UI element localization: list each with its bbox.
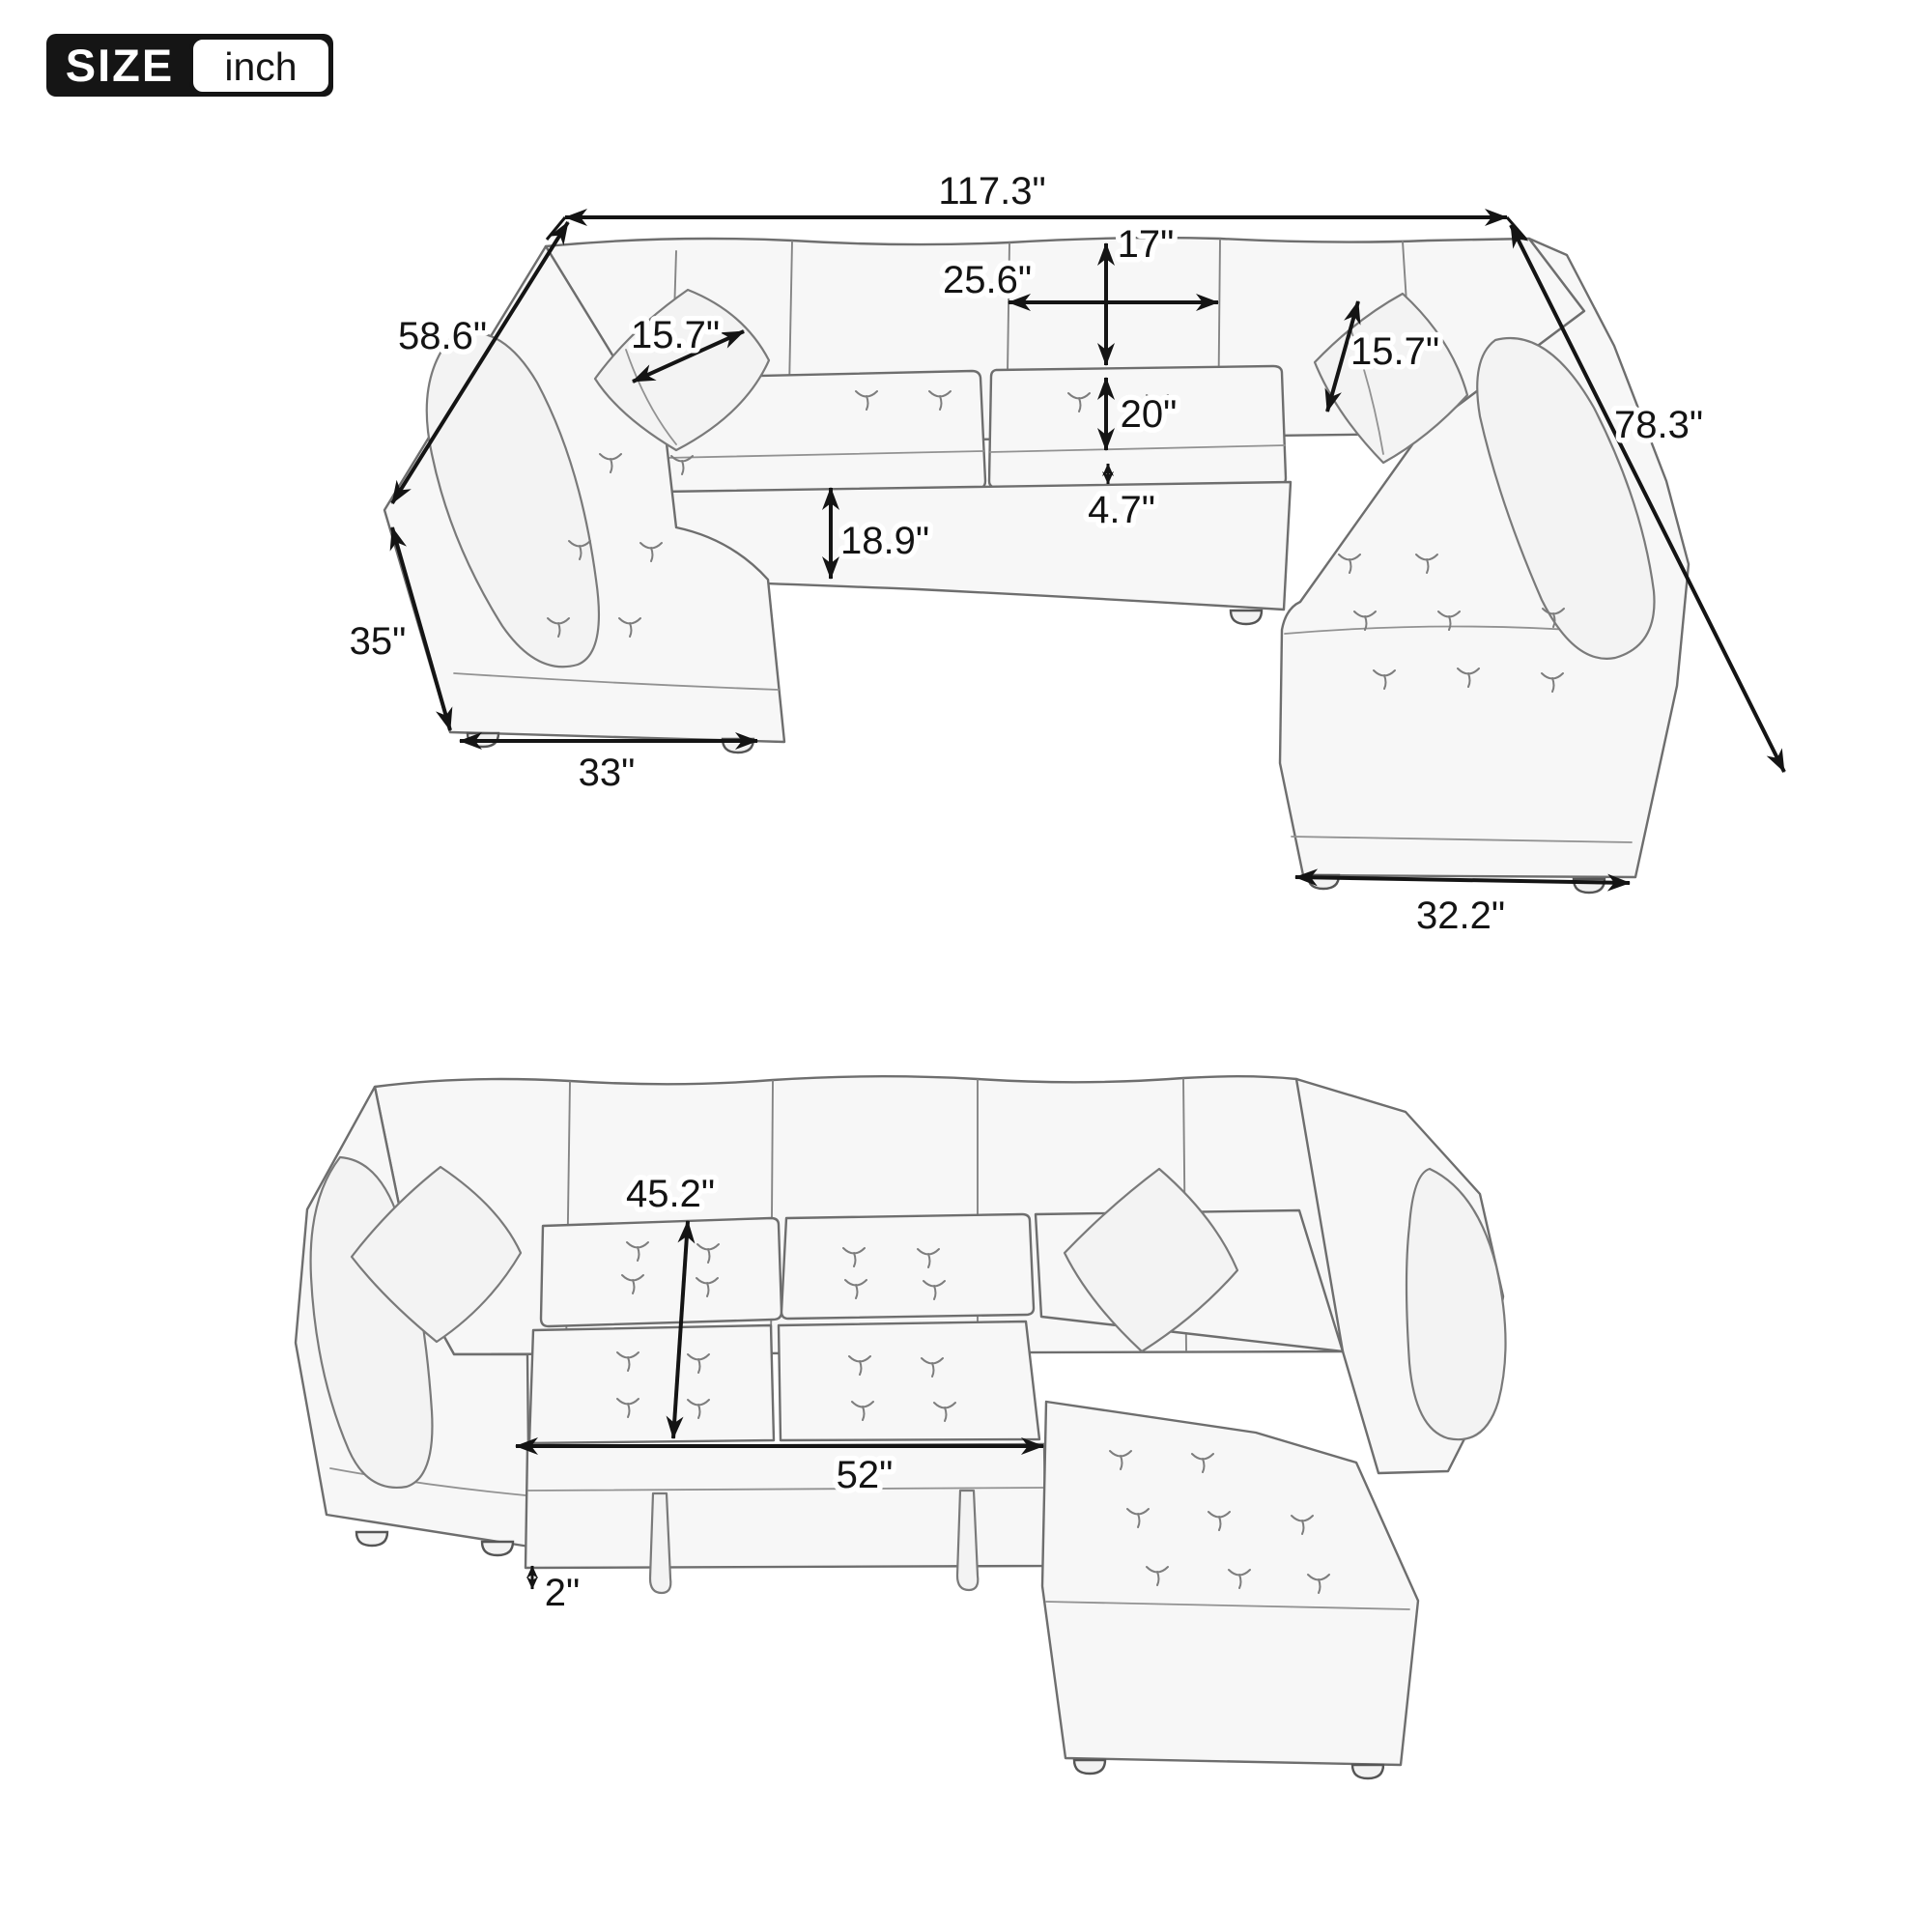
dim-pillow-left-label: 15.7" xyxy=(631,314,720,356)
dim-left-depth-label: 58.6" xyxy=(398,315,487,357)
size-badge: SIZE inch xyxy=(46,34,333,97)
dim-chaise-width-label: 32.2" xyxy=(1416,895,1505,937)
bottom-bed-cushion-right xyxy=(779,1321,1039,1440)
dim-overall-width: 117.3" xyxy=(547,170,1526,240)
dim-bed-width-label: 52" xyxy=(837,1454,894,1496)
dim-overall-width-label: 117.3" xyxy=(938,170,1045,213)
dim-corner-width: 33" xyxy=(460,741,757,794)
dim-cushion-front-label: 4.7" xyxy=(1088,489,1155,531)
dim-leg-height: 2" xyxy=(532,1566,580,1614)
dim-front-height-label: 18.9" xyxy=(840,520,929,562)
bottom-chaise-foot-1 xyxy=(1074,1760,1105,1774)
dim-pillow-right-label: 15.7" xyxy=(1350,330,1439,373)
badge-unit-label: inch xyxy=(224,44,297,89)
dim-corner-width-label: 33" xyxy=(579,752,636,794)
bottom-chaise-foot-2 xyxy=(1352,1765,1383,1778)
bottom-right-arm-cushion xyxy=(1406,1169,1506,1439)
badge-size-label: SIZE xyxy=(66,40,174,91)
dim-bed-depth-label: 45.2" xyxy=(626,1173,715,1215)
bottom-bed-leg-2 xyxy=(957,1491,978,1590)
dim-leg-height-label: 2" xyxy=(545,1572,580,1614)
dimension-diagram-canvas: SIZE inch xyxy=(0,0,1932,1932)
bottom-seat-cushion-left xyxy=(541,1218,781,1326)
dim-back-height-label: 17" xyxy=(1118,223,1175,266)
bottom-left-foot-1 xyxy=(356,1532,387,1546)
bottom-seat-cushion-right xyxy=(781,1214,1034,1319)
bottom-left-foot-2 xyxy=(482,1542,513,1555)
bottom-chaise xyxy=(1042,1402,1418,1765)
bottom-bed-cushion-left xyxy=(529,1325,774,1443)
dim-right-depth-label: 78.3" xyxy=(1614,404,1703,446)
bottom-view-sofa xyxy=(296,1076,1506,1778)
dim-seat-depth-label: 20" xyxy=(1121,393,1178,436)
bottom-bed-leg-1 xyxy=(650,1493,670,1593)
dim-arm-height-label: 35" xyxy=(350,620,407,663)
dim-seat-width-label: 25.6" xyxy=(943,259,1032,301)
top-base-foot xyxy=(1231,611,1262,624)
top-view-sofa xyxy=(384,238,1689,893)
